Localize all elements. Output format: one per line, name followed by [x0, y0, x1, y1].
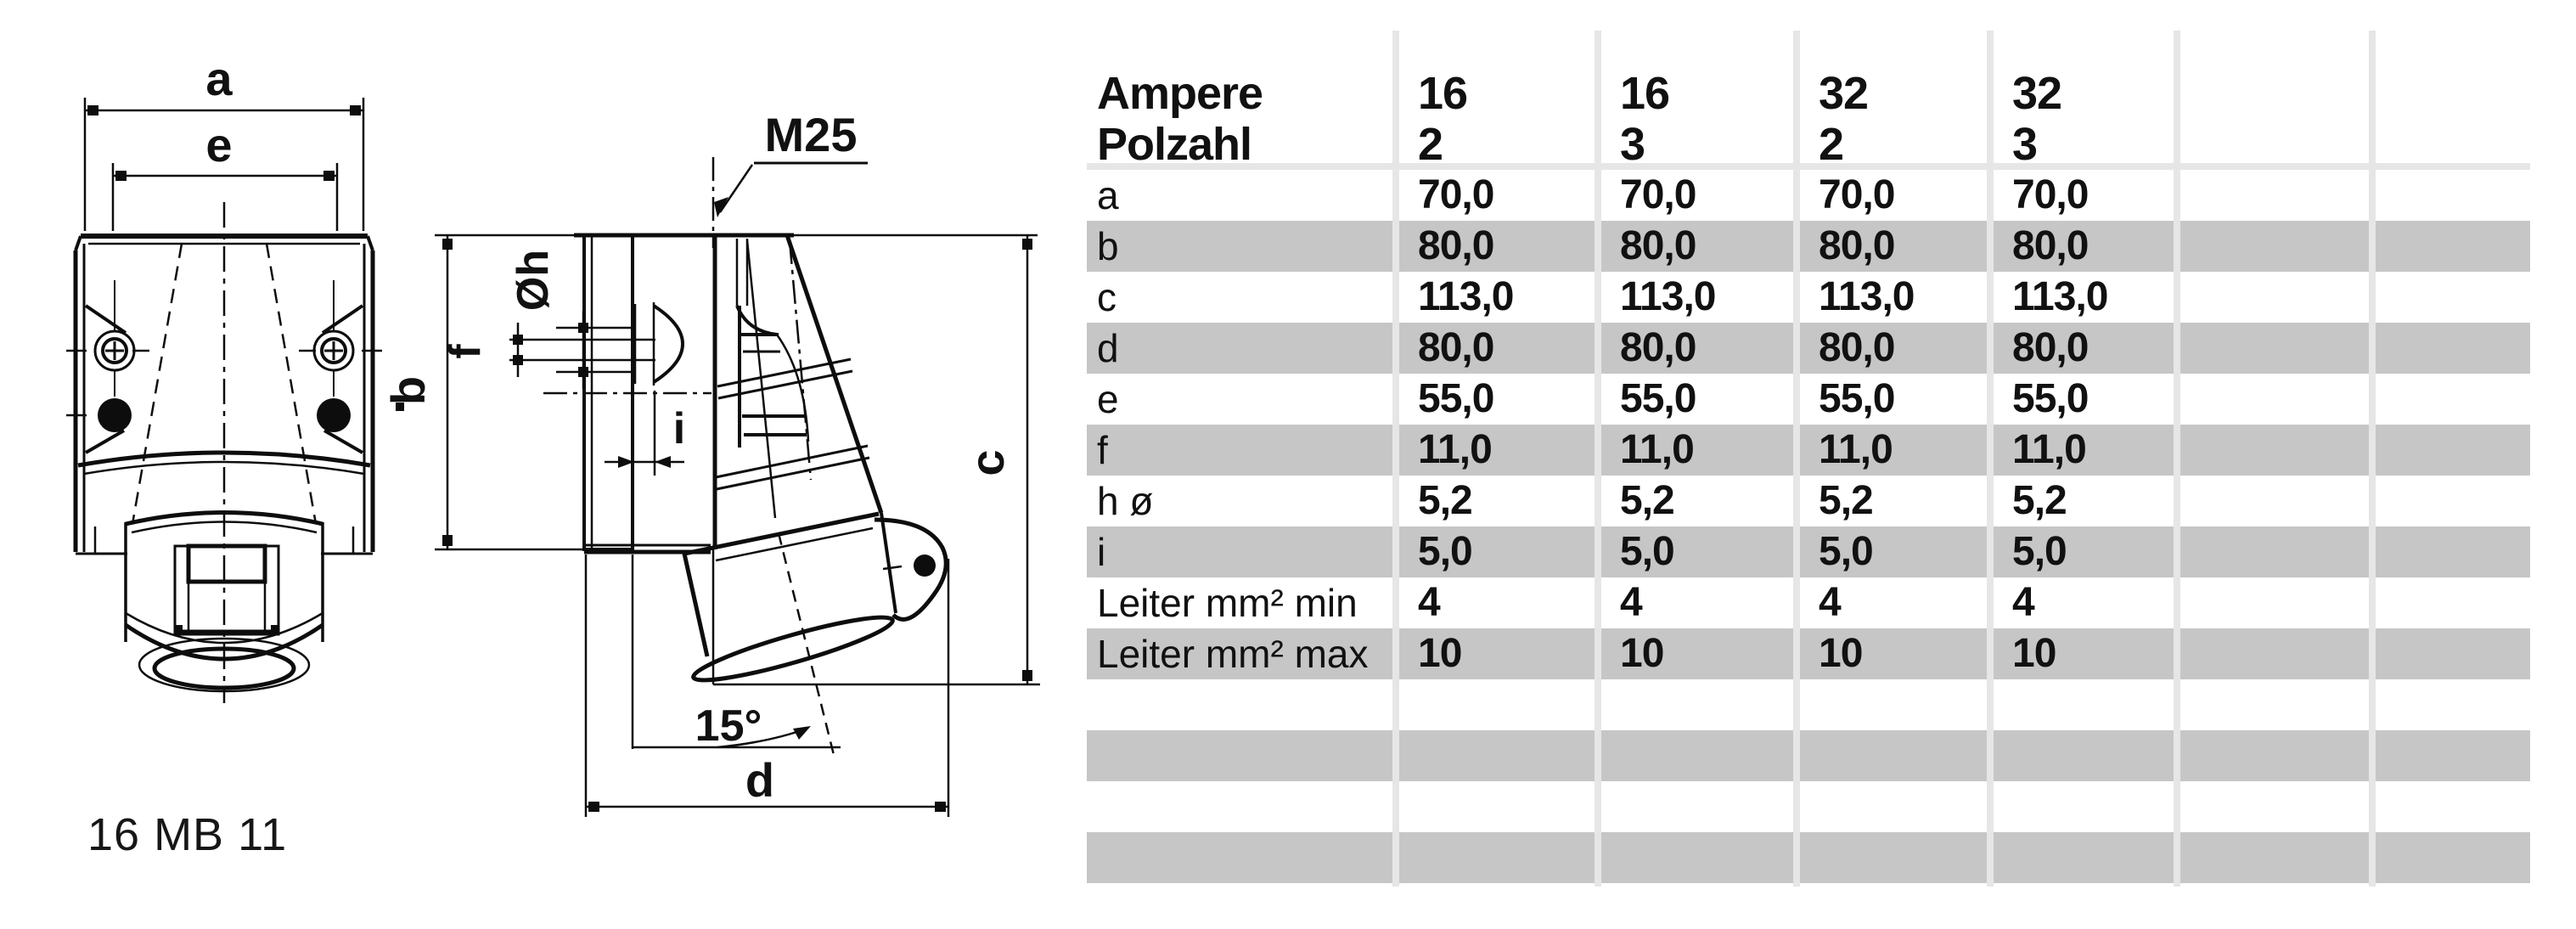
label-dim-a: a	[205, 52, 233, 105]
spec-table: AmperePolzahl 162163322323 a70,070,070,0…	[1087, 31, 2530, 883]
header-col-5	[2174, 31, 2369, 170]
table-row: Leiter mm² max10101010	[1087, 628, 2530, 679]
label-dim-c: c	[960, 449, 1014, 476]
row-value: 4	[1987, 577, 2174, 628]
table-row	[1087, 730, 2530, 781]
screw-left	[95, 280, 134, 397]
label-dim-f: f	[441, 344, 490, 359]
table-header: AmperePolzahl 162163322323	[1087, 31, 2530, 170]
row-label: b	[1087, 221, 1392, 272]
row-label: i	[1087, 526, 1392, 577]
header-col-2: 163	[1595, 31, 1793, 170]
row-value: 10	[1793, 628, 1987, 679]
datasheet-page: a e M25 b c Øh f i 15° d 16 MB 11 Ampere…	[0, 0, 2576, 929]
row-value: 80,0	[1793, 221, 1987, 272]
row-value: 10	[1392, 628, 1595, 679]
row-value: 5,0	[1595, 526, 1793, 577]
row-value: 10	[1987, 628, 2174, 679]
knockout-left	[98, 398, 132, 432]
row-value: 113,0	[1987, 272, 2174, 323]
row-label: f	[1087, 425, 1392, 476]
row-label: Leiter mm² max	[1087, 628, 1392, 679]
row-value: 5,2	[1392, 476, 1595, 526]
screw-right	[314, 280, 353, 397]
header-col-4: 323	[1987, 31, 2174, 170]
label-gland-m25: M25	[765, 108, 858, 161]
row-value: 55,0	[1793, 374, 1987, 425]
table-row: Leiter mm² min4444	[1087, 577, 2530, 628]
row-value: 80,0	[1987, 221, 2174, 272]
row-value: 80,0	[1392, 221, 1595, 272]
header-col-6	[2369, 31, 2530, 170]
model-number: 16 MB 11	[87, 808, 287, 861]
row-value: 5,0	[1987, 526, 2174, 577]
label-dim-d: d	[745, 753, 774, 807]
table-row	[1087, 832, 2530, 883]
knockout-right	[317, 398, 351, 432]
dim-f	[556, 311, 635, 389]
label-dim-i: i	[673, 404, 685, 453]
row-value: 113,0	[1595, 272, 1793, 323]
row-value: 80,0	[1392, 323, 1595, 374]
table-row: b80,080,080,080,0	[1087, 221, 2530, 272]
row-label: d	[1087, 323, 1392, 374]
row-value: 113,0	[1793, 272, 1987, 323]
row-value: 4	[1392, 577, 1595, 628]
front-view	[66, 98, 404, 703]
row-value: 5,2	[1595, 476, 1793, 526]
header-label-cell: AmperePolzahl	[1087, 31, 1392, 170]
row-value: 10	[1595, 628, 1793, 679]
table-row: h ø5,25,25,25,2	[1087, 476, 2530, 526]
row-label: Leiter mm² min	[1087, 577, 1392, 628]
row-value: 4	[1595, 577, 1793, 628]
row-value: 70,0	[1392, 170, 1595, 221]
row-value: 5,2	[1793, 476, 1987, 526]
row-value: 55,0	[1595, 374, 1793, 425]
header-underline	[1087, 163, 2530, 170]
table-body: a70,070,070,070,0b80,080,080,080,0c113,0…	[1087, 170, 2530, 883]
row-value: 80,0	[1793, 323, 1987, 374]
label-angle-15: 15°	[695, 701, 762, 751]
table-row: a70,070,070,070,0	[1087, 170, 2530, 221]
row-label: c	[1087, 272, 1392, 323]
table-row: c113,0113,0113,0113,0	[1087, 272, 2530, 323]
label-dim-b: b	[381, 376, 435, 405]
row-value: 11,0	[1595, 425, 1793, 476]
table-row	[1087, 679, 2530, 730]
row-value: 80,0	[1595, 323, 1793, 374]
row-value: 11,0	[1793, 425, 1987, 476]
header-col-3: 322	[1793, 31, 1987, 170]
row-value: 55,0	[1392, 374, 1595, 425]
row-value: 80,0	[1595, 221, 1793, 272]
row-label: e	[1087, 374, 1392, 425]
table-row: e55,055,055,055,0	[1087, 374, 2530, 425]
header-col-1: 162	[1392, 31, 1595, 170]
row-value: 5,0	[1392, 526, 1595, 577]
row-value: 70,0	[1987, 170, 2174, 221]
mount-screw	[635, 302, 683, 386]
row-label: h ø	[1087, 476, 1392, 526]
row-value: 70,0	[1793, 170, 1987, 221]
row-value: 11,0	[1987, 425, 2174, 476]
row-label: a	[1087, 170, 1392, 221]
row-value: 11,0	[1392, 425, 1595, 476]
table-row: d80,080,080,080,0	[1087, 323, 2530, 374]
row-value: 70,0	[1595, 170, 1793, 221]
label-dim-h: Øh	[509, 250, 558, 311]
table-row	[1087, 781, 2530, 832]
label-dim-e: e	[205, 118, 232, 172]
row-value: 5,0	[1793, 526, 1987, 577]
m25-leader	[714, 163, 868, 217]
latch	[175, 546, 278, 634]
table-row: i5,05,05,05,0	[1087, 526, 2530, 577]
technical-drawing: a e M25 b c Øh f i 15° d	[0, 0, 1061, 929]
row-value: 113,0	[1392, 272, 1595, 323]
row-value: 4	[1793, 577, 1987, 628]
table-row: f11,011,011,011,0	[1087, 425, 2530, 476]
row-value: 55,0	[1987, 374, 2174, 425]
row-value: 80,0	[1987, 323, 2174, 374]
row-value: 5,2	[1987, 476, 2174, 526]
